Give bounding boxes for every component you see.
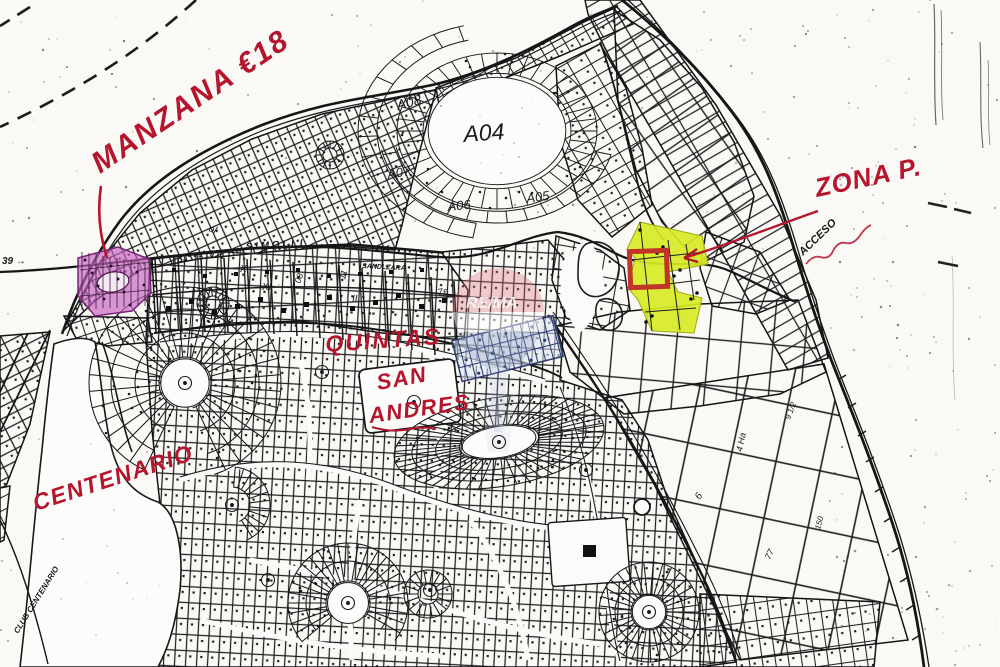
svg-text:10: 10 [203,248,215,260]
svg-text:39 →: 39 → [2,256,26,267]
svg-text:II: II [352,294,358,305]
svg-text:X: X [239,264,247,275]
svg-text:A06: A06 [446,197,472,215]
svg-text:XI: XI [261,282,272,293]
svg-text:A04: A04 [461,118,506,147]
svg-text:83: 83 [177,252,189,264]
svg-text:RE/MA: RE/MA [466,295,518,312]
